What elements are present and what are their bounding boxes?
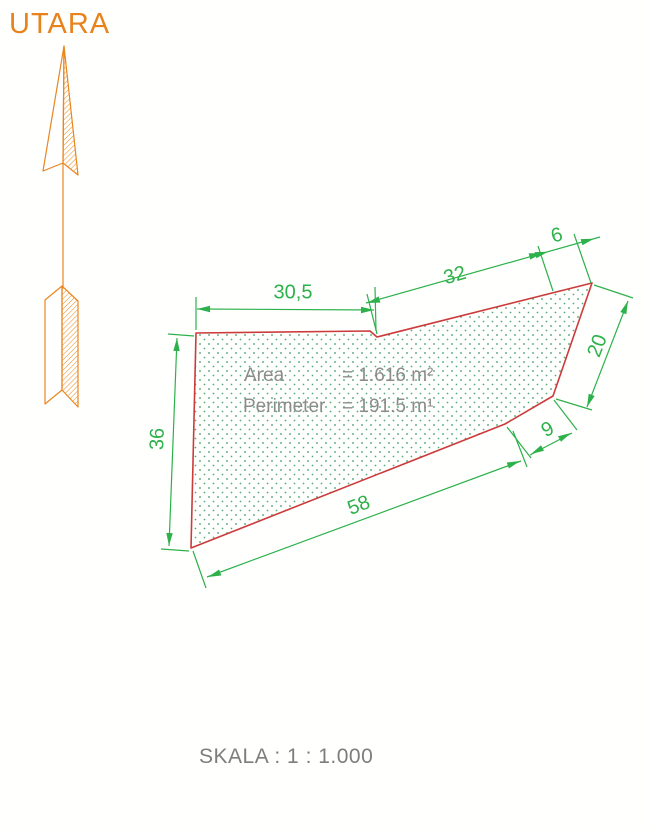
perimeter-label: Perimeter (243, 396, 325, 418)
area-value: = 1.616 m² (342, 365, 433, 387)
area-label: Area (244, 365, 284, 387)
perimeter-value: = 191.5 m¹ (342, 396, 433, 418)
survey-sketch-canvas: UTARA 30,5 32 6 20 9 58 36 Area = 1.616 … (0, 0, 649, 831)
north-label: UTARA (9, 8, 110, 41)
dimension-label-top-left: 30,5 (274, 282, 313, 305)
dimension-label-left: 36 (146, 427, 170, 450)
scale-label: SKALA : 1 : 1.000 (199, 745, 373, 769)
north-arrow-icon (43, 46, 78, 407)
